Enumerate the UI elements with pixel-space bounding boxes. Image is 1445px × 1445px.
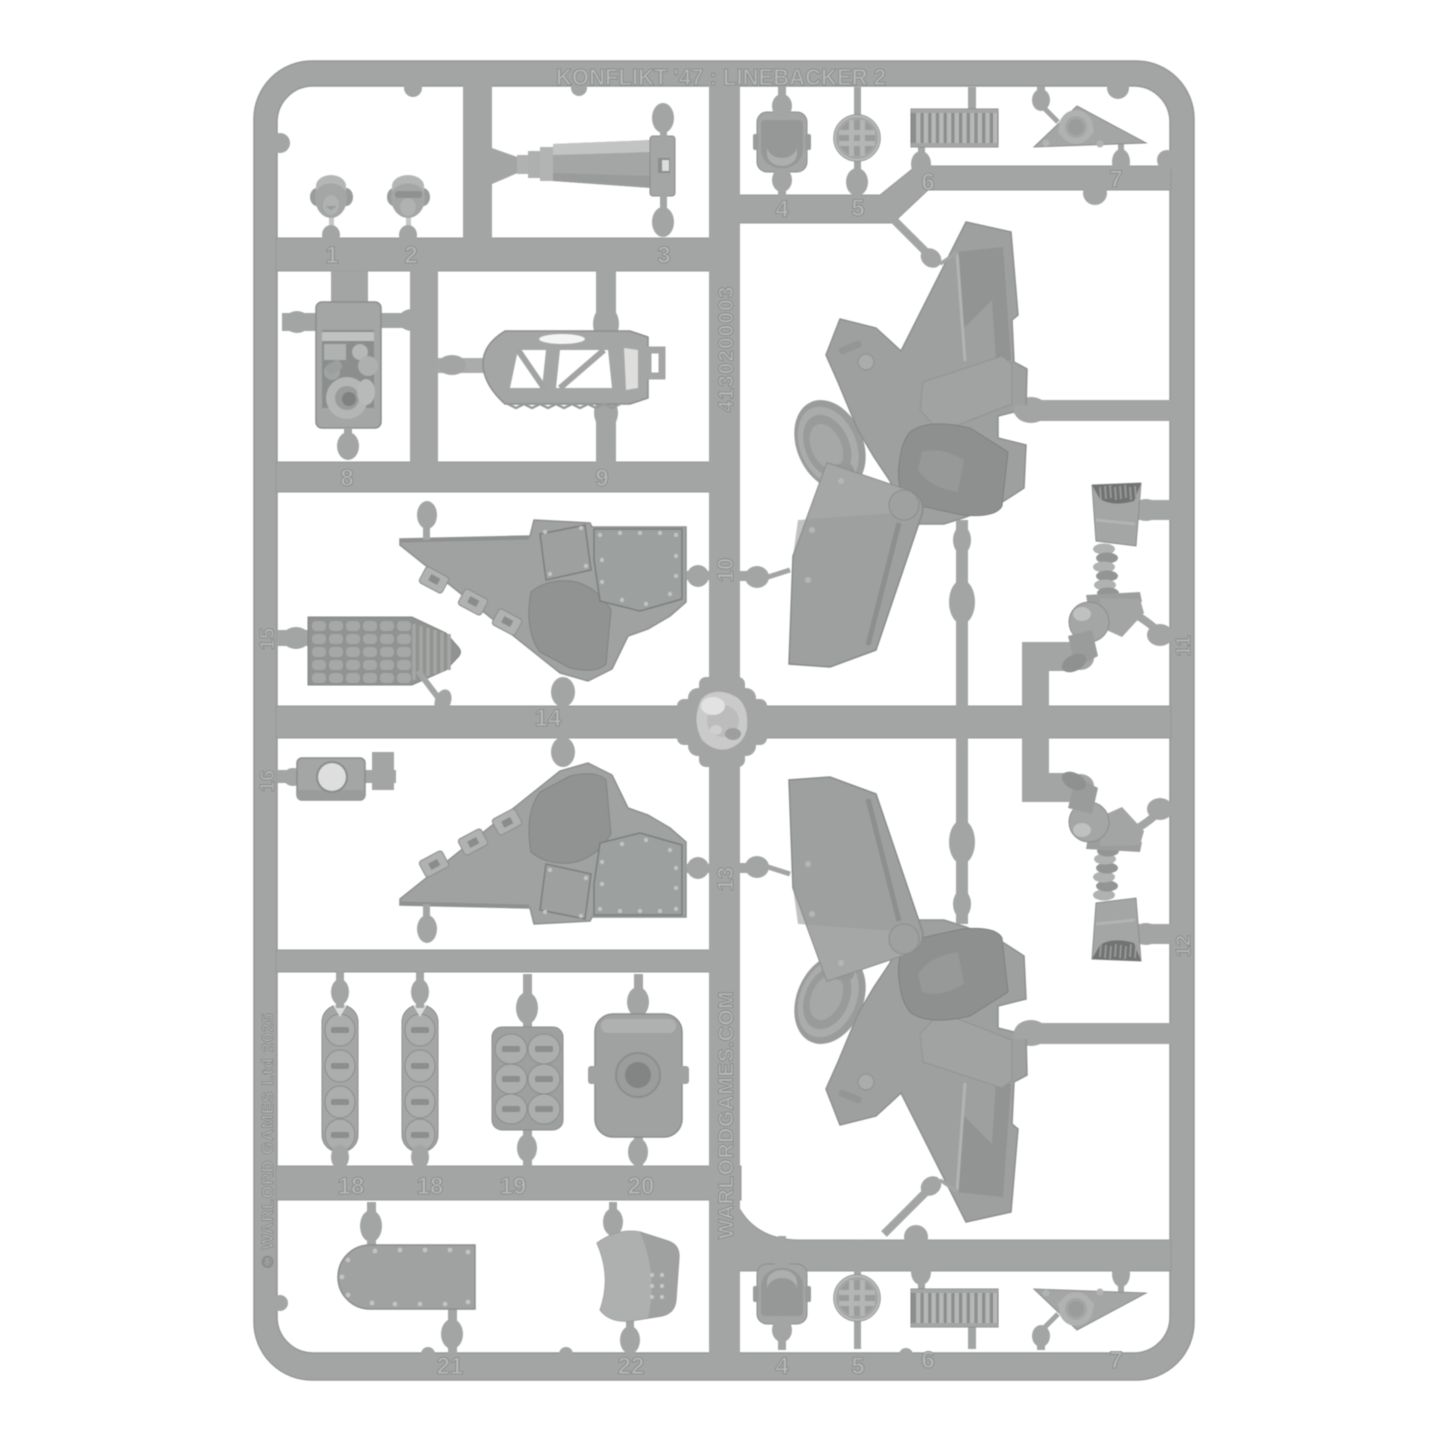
svg-text:7: 7: [1109, 166, 1122, 193]
svg-text:3: 3: [657, 242, 670, 269]
svg-text:12: 12: [1173, 935, 1195, 957]
svg-text:4130200003: 4130200003: [715, 286, 738, 413]
svg-text:1: 1: [325, 242, 338, 269]
svg-text:22: 22: [618, 1353, 645, 1380]
svg-text:8: 8: [340, 465, 353, 492]
svg-text:21: 21: [437, 1353, 464, 1380]
svg-text:WARLORDGAMES.COM: WARLORDGAMES.COM: [715, 991, 738, 1239]
svg-text:4: 4: [775, 1353, 789, 1380]
svg-text:15: 15: [257, 628, 279, 650]
svg-text:4: 4: [775, 196, 789, 223]
svg-text:19: 19: [500, 1173, 527, 1200]
svg-text:13: 13: [713, 867, 738, 891]
svg-text:18: 18: [338, 1173, 365, 1200]
svg-text:KONFLIKT '47 : LINEBACKER 2: KONFLIKT '47 : LINEBACKER 2: [556, 64, 886, 90]
svg-text:6: 6: [921, 169, 934, 196]
svg-text:9: 9: [595, 465, 608, 492]
svg-text:20: 20: [628, 1173, 655, 1200]
svg-text:7: 7: [1109, 1347, 1122, 1374]
svg-text:10: 10: [713, 558, 738, 582]
svg-text:5: 5: [851, 1353, 864, 1380]
svg-text:11: 11: [1173, 635, 1195, 656]
svg-text:© WARLORD GAMES Ltd 2025: © WARLORD GAMES Ltd 2025: [260, 1012, 277, 1267]
svg-text:5: 5: [851, 195, 864, 222]
svg-text:6: 6: [921, 1347, 934, 1374]
svg-text:18: 18: [417, 1173, 444, 1200]
svg-text:14: 14: [535, 705, 562, 732]
svg-text:2: 2: [404, 242, 417, 269]
svg-text:16: 16: [257, 770, 279, 792]
